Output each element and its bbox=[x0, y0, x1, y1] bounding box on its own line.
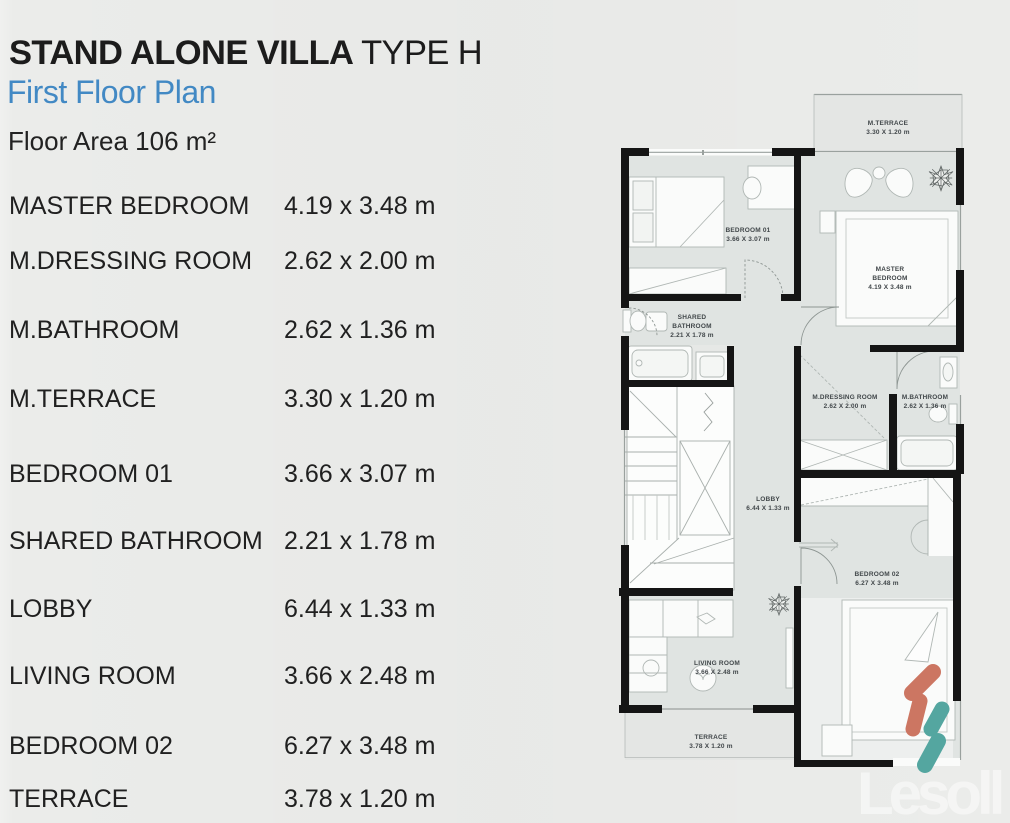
svg-text:M.BATHROOM: M.BATHROOM bbox=[902, 394, 948, 401]
svg-text:4.19 X 3.48 m: 4.19 X 3.48 m bbox=[868, 284, 911, 291]
svg-text:LIVING ROOM: LIVING ROOM bbox=[694, 660, 740, 667]
svg-text:2.62 X 2.00 m: 2.62 X 2.00 m bbox=[824, 403, 867, 410]
svg-text:BEDROOM 01: BEDROOM 01 bbox=[726, 227, 771, 234]
svg-text:2.62 X 1.36 m: 2.62 X 1.36 m bbox=[904, 403, 947, 410]
svg-text:3.78 X 1.20 m: 3.78 X 1.20 m bbox=[689, 743, 732, 750]
svg-text:BEDROOM: BEDROOM bbox=[872, 275, 907, 282]
svg-text:SHARED: SHARED bbox=[678, 314, 707, 321]
svg-text:BATHROOM: BATHROOM bbox=[672, 323, 711, 330]
svg-text:3.66 X 2.48 m: 3.66 X 2.48 m bbox=[695, 669, 738, 676]
svg-text:6.27 X 3.48 m: 6.27 X 3.48 m bbox=[855, 580, 898, 587]
svg-text:M.DRESSING ROOM: M.DRESSING ROOM bbox=[812, 394, 877, 401]
svg-text:BEDROOM 02: BEDROOM 02 bbox=[855, 571, 900, 578]
svg-text:3.30 X 1.20 m: 3.30 X 1.20 m bbox=[866, 129, 909, 136]
svg-text:6.44 X 1.33 m: 6.44 X 1.33 m bbox=[746, 505, 789, 512]
svg-text:2.21 X 1.78 m: 2.21 X 1.78 m bbox=[670, 332, 713, 339]
svg-text:Lesoll: Lesoll bbox=[857, 760, 1002, 823]
svg-text:LOBBY: LOBBY bbox=[756, 496, 780, 503]
svg-text:M.TERRACE: M.TERRACE bbox=[868, 120, 909, 127]
svg-text:MASTER: MASTER bbox=[876, 266, 905, 273]
svg-text:3.66 X 3.07 m: 3.66 X 3.07 m bbox=[726, 236, 769, 243]
svg-text:TERRACE: TERRACE bbox=[695, 734, 728, 741]
